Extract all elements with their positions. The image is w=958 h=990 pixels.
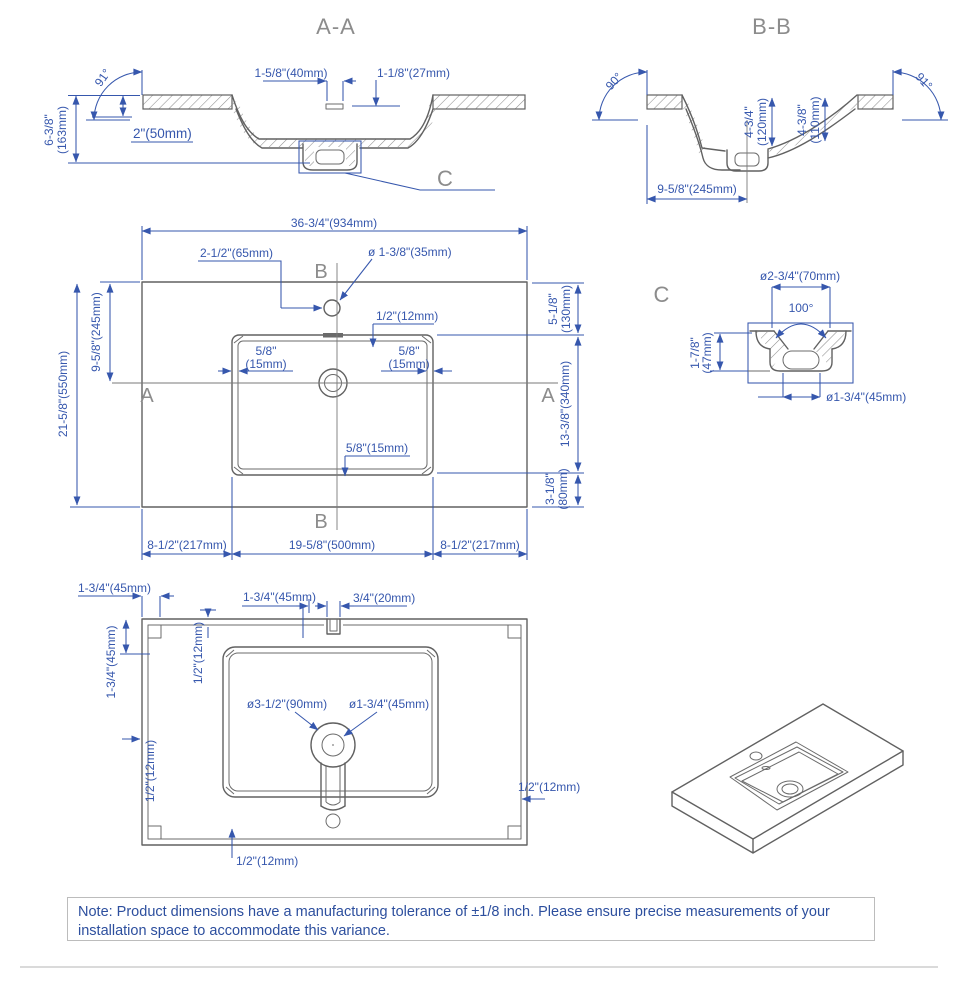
bottom-pilot-hole (326, 814, 340, 828)
bottom-slot-label: 3/4"(20mm) (353, 591, 415, 605)
bottom-drain-outer-label: ø3-1/2"(90mm) (247, 697, 327, 711)
plan-lip-left-in-label: 5/8" (256, 344, 277, 358)
plan-faucet-offset-label: 2-1/2"(65mm) (200, 246, 273, 260)
plan-faucet-dia-label: ø 1-3/8"(35mm) (368, 245, 452, 259)
aa-height-in-label: 6-3/8" (42, 114, 56, 146)
plan-depth-label: 21-5/8"(550mm) (56, 351, 70, 437)
iso-drain (777, 781, 803, 797)
c-dia-bottom-label: ø1-3/4"(45mm) (826, 390, 906, 404)
plan-faucet-hole (324, 300, 340, 316)
detail-c-title: C (654, 282, 671, 307)
c-angle-label: 100° (789, 301, 814, 315)
aa-detail-ref-label: C (437, 166, 454, 191)
plan-lip-right-in-label: 5/8" (399, 344, 420, 358)
detail-c-object (748, 323, 853, 383)
bb-depth2-mm-label: (110mm) (808, 96, 822, 143)
technical-drawing-sheet: A-A 6-3/8" (163mm) 91° (0, 0, 958, 990)
bb-depth1-in-label: 4-3/4" (742, 106, 756, 138)
bottom-notch-h-label: 1-3/4"(45mm) (104, 626, 118, 699)
bb-angle-left-label: 90° (603, 70, 626, 93)
plan-bottom-left-label: 8-1/2"(217mm) (147, 538, 227, 552)
tolerance-note: Note: Product dimensions have a manufact… (67, 897, 875, 941)
detail-c-dimensions: ø2-3/4"(70mm) 100° 1-7/8" (47mm) ø1-3/4"… (688, 269, 906, 404)
bottom-dimensions: 1-3/4"(45mm) 1-3/4"(45mm) 1/2"(12mm) 1-3… (78, 581, 580, 868)
c-height-mm-label: (47mm) (700, 332, 714, 373)
aa-slot-label: 1-5/8"(40mm) (255, 66, 328, 80)
plan-section-b-bottom: B (314, 511, 327, 533)
plan-width-label: 36-3/4"(934mm) (291, 216, 377, 230)
bottom-view: 1-3/4"(45mm) 1-3/4"(45mm) 1/2"(12mm) 1-3… (78, 581, 580, 868)
section-aa-view: A-A 6-3/8" (163mm) 91° (42, 14, 525, 191)
iso-overflow (762, 767, 770, 770)
bb-width-label: 9-5/8"(245mm) (657, 182, 737, 196)
c-dia-top-label: ø2-3/4"(70mm) (760, 269, 840, 283)
bottom-drain-inner-label: ø1-3/4"(45mm) (349, 697, 429, 711)
plan-right-bot-in-label: 3-1/8" (543, 473, 557, 505)
plan-front-label: 9-5/8"(245mm) (89, 292, 103, 372)
plan-object: A A B B (112, 261, 558, 533)
plan-right-mid-label: 13-3/8"(340mm) (558, 361, 572, 447)
bottom-notch-w-label: 1-3/4"(45mm) (78, 581, 151, 595)
plan-view: A A B B 36-3/4"(934mm) 2-1/2"(65mm) ø 1-… (56, 216, 584, 560)
section-bb-dimensions: 90° 91° 4-3/4" (120mm) 4-3/8" (110mm) 9-… (592, 70, 948, 204)
plan-lip-bottom-label: 5/8"(15mm) (346, 441, 408, 455)
aa-angle-label: 91° (92, 66, 114, 89)
plan-rim-label: 1/2"(12mm) (376, 309, 438, 323)
bottom-rim-right-label: 1/2"(12mm) (518, 780, 580, 794)
plan-section-a-right: A (541, 385, 555, 407)
section-bb-title: B-B (752, 14, 792, 39)
detail-c-view: C ø2-3/4"(70mm) 100° 1-7/8" (47mm) (654, 269, 907, 404)
isometric-view (672, 704, 903, 853)
section-aa-title: A-A (316, 14, 356, 39)
plan-lip-left-mm-label: (15mm) (245, 357, 286, 371)
bottom-rim-left-label: 1/2"(12mm) (143, 740, 157, 802)
bb-angle-right-label: 91° (913, 70, 936, 93)
bottom-rim-top-label: 1/2"(12mm) (191, 622, 205, 684)
footer-divider (20, 966, 938, 968)
bottom-rim-bottom-label: 1/2"(12mm) (236, 854, 298, 868)
plan-section-b-top: B (314, 261, 327, 283)
plan-bottom-center-label: 19-5/8"(500mm) (289, 538, 375, 552)
bottom-center-off-label: 1-3/4"(45mm) (243, 590, 316, 604)
plan-right-top-mm-label: (130mm) (559, 285, 573, 333)
plan-overflow-slot (323, 333, 343, 338)
aa-overflow-label: 1-1/8"(27mm) (377, 66, 450, 80)
section-aa-object (143, 95, 525, 170)
section-bb-view: B-B 90° 91° (592, 14, 948, 204)
iso-faucet-hole (750, 752, 762, 760)
plan-lip-right-mm-label: (15mm) (388, 357, 429, 371)
plan-section-a-left: A (140, 385, 154, 407)
plan-right-top-in-label: 5-1/8" (546, 293, 560, 325)
plan-right-bot-mm-label: (80mm) (556, 468, 570, 509)
aa-height-mm-label: (163mm) (55, 106, 69, 154)
bb-depth2-in-label: 4-3/8" (795, 104, 809, 136)
drawing-canvas: A-A 6-3/8" (163mm) 91° (0, 0, 958, 990)
aa-thickness-label: 2"(50mm) (133, 126, 192, 141)
bb-depth1-mm-label: (120mm) (755, 98, 769, 146)
tolerance-note-text: Note: Product dimensions have a manufact… (78, 904, 830, 939)
plan-bottom-right-label: 8-1/2"(217mm) (440, 538, 520, 552)
